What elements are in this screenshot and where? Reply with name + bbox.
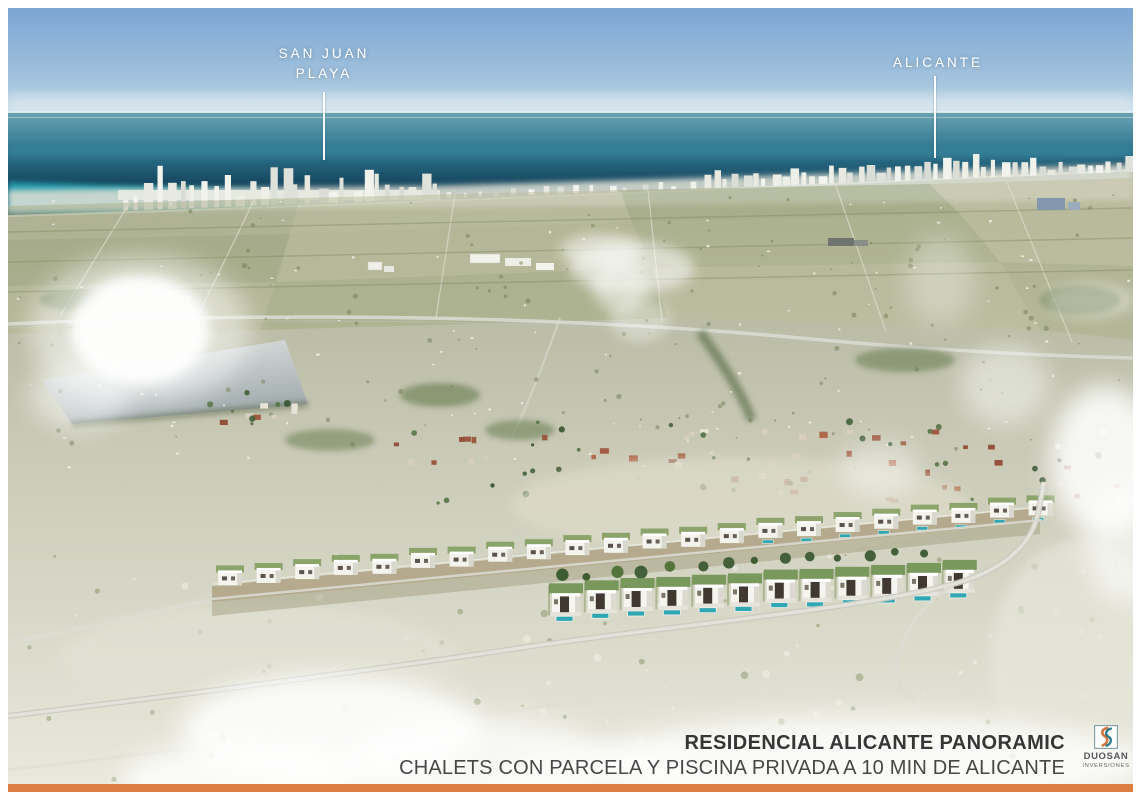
label-san-juan-line1: SAN JUAN — [249, 44, 399, 64]
label-alicante: ALICANTE — [863, 53, 1013, 73]
aerial-render: SAN JUAN PLAYA ALICANTE — [8, 8, 1133, 784]
caption: RESIDENCIAL ALICANTE PANORAMIC CHALETS C… — [399, 732, 1065, 780]
scene-art — [8, 8, 1133, 784]
accent-bar — [8, 784, 1133, 792]
label-san-juan-playa: SAN JUAN PLAYA — [249, 44, 399, 84]
pointer-line-san-juan — [323, 92, 325, 160]
label-san-juan-line2: PLAYA — [249, 64, 399, 84]
logo-subname: INVERSIONES — [1080, 763, 1132, 769]
horizon-line — [8, 111, 1133, 113]
developer-logo: DUOSAN INVERSIONES — [1080, 725, 1132, 769]
duosan-monogram-icon — [1094, 725, 1118, 749]
horizon-haze — [8, 96, 1133, 114]
poster: SAN JUAN PLAYA ALICANTE RESIDENCIAL ALIC… — [0, 0, 1141, 800]
logo-name: DUOSAN — [1080, 751, 1132, 762]
project-title: RESIDENCIAL ALICANTE PANORAMIC — [399, 732, 1065, 755]
project-subtitle: CHALETS CON PARCELA Y PISCINA PRIVADA A … — [399, 757, 1065, 780]
pointer-line-alicante — [934, 76, 936, 158]
label-alicante-text: ALICANTE — [863, 53, 1013, 73]
